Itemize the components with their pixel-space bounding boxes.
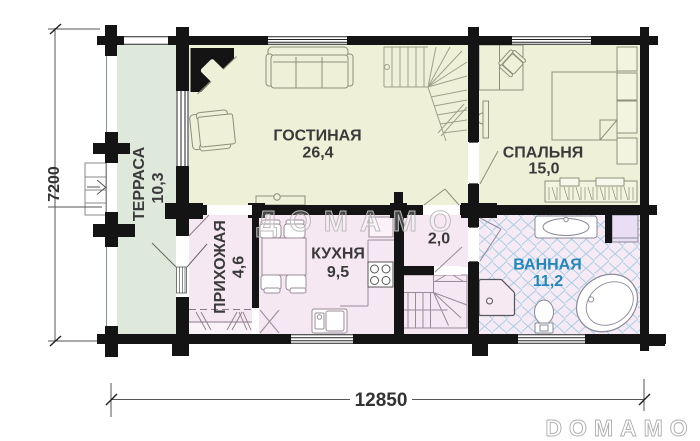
svg-text:12850: 12850 — [355, 390, 408, 411]
svg-text:10,3: 10,3 — [150, 172, 167, 203]
svg-text:11,2: 11,2 — [533, 273, 563, 290]
svg-text:ДОМАМО: ДОМАМО — [256, 206, 463, 238]
svg-text:ТЕРРАСА: ТЕРРАСА — [131, 146, 148, 221]
svg-text:DOMAMO: DOMAMO — [545, 415, 694, 441]
svg-text:ВАННАЯ: ВАННАЯ — [513, 257, 581, 274]
svg-text:СПАЛЬНЯ: СПАЛЬНЯ — [503, 145, 584, 162]
svg-text:КУХНЯ: КУХНЯ — [311, 246, 365, 263]
svg-text:7200: 7200 — [46, 166, 63, 202]
svg-text:9,5: 9,5 — [327, 264, 349, 281]
svg-text:ГОСТИНАЯ: ГОСТИНАЯ — [273, 128, 361, 145]
svg-text:15,0: 15,0 — [528, 161, 559, 178]
svg-text:ПРИХОЖАЯ: ПРИХОЖАЯ — [212, 220, 229, 314]
svg-text:4,6: 4,6 — [231, 256, 248, 278]
svg-text:26,4: 26,4 — [302, 145, 333, 162]
